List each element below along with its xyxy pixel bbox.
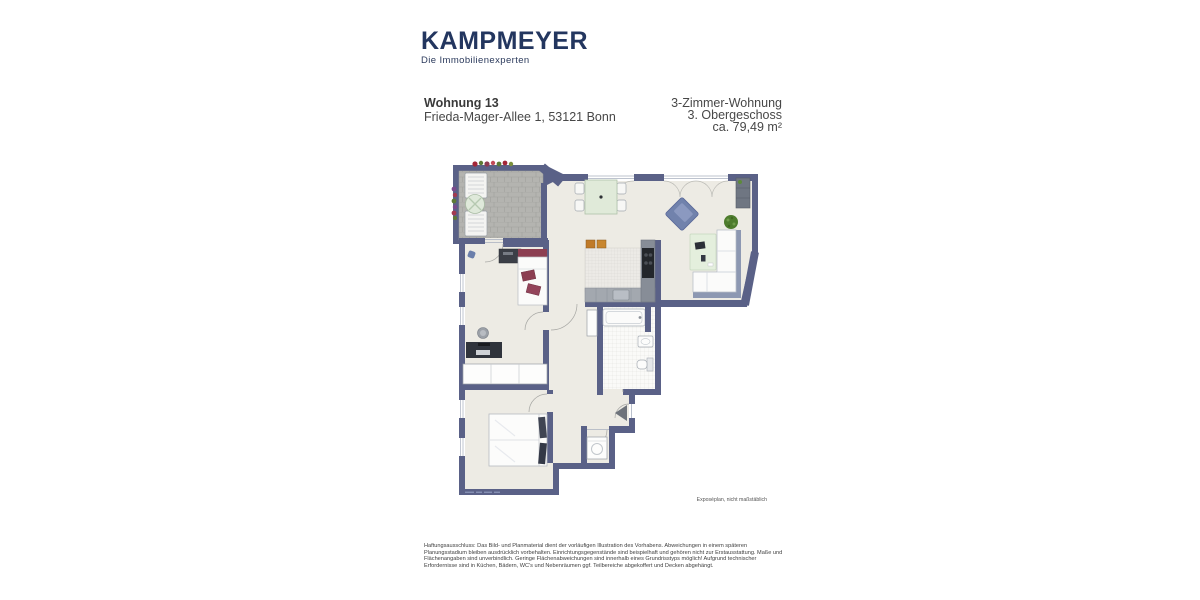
detail-area: ca. 79,49 m²	[671, 121, 782, 133]
washing-machine	[587, 437, 607, 459]
disclaimer-line: Planungsstadium bleiben ausdrücklich vor…	[424, 550, 782, 557]
wardrobe	[463, 364, 547, 384]
bathroom	[603, 307, 655, 389]
bathtub	[603, 309, 645, 326]
unit-title: Wohnung 13	[424, 97, 616, 110]
disclaimer-line: Haftungsausschluss: Das Bild- und Planma…	[424, 543, 782, 550]
hall-cupboard	[587, 310, 597, 336]
plant	[724, 215, 738, 229]
unit-header: Wohnung 13 Frieda-Mager-Allee 1, 53121 B…	[424, 97, 616, 124]
sideboard	[736, 178, 750, 208]
terrace-table	[466, 195, 485, 214]
unit-details: 3-Zimmer-Wohnung 3. Obergeschoss ca. 79,…	[671, 97, 782, 133]
floorplan-svg	[445, 152, 775, 510]
kitchen	[585, 240, 655, 302]
terrace	[452, 161, 561, 247]
disclaimer-line: Flächenangaben sind unverbindlich. Gerin…	[424, 556, 782, 563]
unit-address: Frieda-Mager-Allee 1, 53121 Bonn	[424, 111, 616, 124]
toilet	[637, 358, 653, 371]
kampmeyer-logo: KAMPMEYER Die Immobilienexperten	[421, 28, 588, 66]
expose-page: KAMPMEYER Die Immobilienexperten Wohnung…	[0, 0, 1200, 600]
logo-brand-text: KAMPMEYER	[421, 28, 588, 54]
sink	[638, 336, 653, 347]
bedroom	[489, 414, 547, 466]
plan-caption: Exposéplan, nicht maßstäblich	[697, 497, 767, 503]
disclaimer: Haftungsausschluss: Das Bild- und Planma…	[424, 543, 782, 570]
logo-tagline: Die Immobilienexperten	[421, 55, 588, 66]
floorplan	[445, 152, 775, 510]
utility-room	[587, 437, 607, 459]
kids-bed	[518, 249, 547, 305]
rug	[690, 234, 716, 270]
disclaimer-line: Erfordernisse sind in Küchen, Bädern, WC…	[424, 563, 782, 570]
terrace-lounger	[465, 211, 487, 236]
